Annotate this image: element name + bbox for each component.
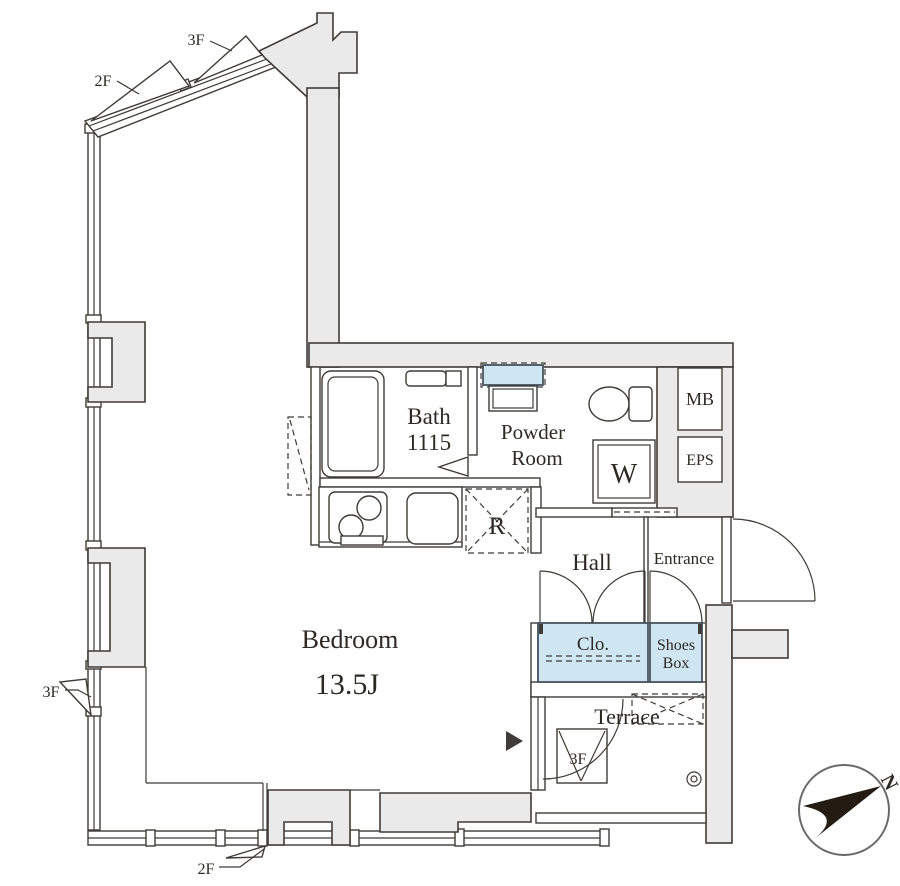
window-mullion (216, 830, 225, 846)
marker-2f-top: 2F (95, 73, 112, 90)
closet-door-arc (593, 571, 645, 623)
marker-3f-left: 3F (43, 684, 60, 701)
window-floor-markers: 2F 3F 3F 2F (43, 32, 264, 878)
hall-label: Hall (572, 550, 612, 575)
closet-door-arc (540, 571, 592, 623)
stove-burner (357, 496, 381, 520)
refrigerator-space: R (466, 489, 528, 553)
closet-hinge-tick (539, 624, 543, 634)
terrace-label: Terrace (594, 704, 660, 729)
kitchen: R (319, 487, 528, 553)
entry-door-arc (733, 519, 815, 601)
toilet-tank (629, 387, 652, 421)
refrigerator-label: R (489, 513, 506, 540)
north-wall-stem (307, 88, 339, 367)
powder-room-label-2: Room (511, 446, 562, 470)
south-wall-block (380, 793, 531, 832)
bath-label: Bath (407, 404, 451, 429)
east-wall (706, 605, 732, 843)
stove-panel (341, 536, 383, 545)
diagonal-window-wall (85, 36, 276, 137)
eps-label: EPS (686, 452, 714, 469)
top-pillar (259, 13, 357, 97)
left-window-wall (85, 124, 101, 830)
marker-3f-top: 3F (188, 32, 205, 49)
shoes-box-door-arc (650, 571, 702, 623)
window-mullion (146, 830, 155, 846)
bath-south-wall (320, 478, 540, 487)
floor-plan: MB EPS R W (0, 0, 900, 886)
drain (687, 772, 701, 786)
toilet-bowl (589, 387, 629, 421)
storage: Clo. Shoes Box (538, 623, 702, 682)
bath-shelf (406, 371, 446, 386)
bath-size-label: 1115 (407, 430, 451, 455)
shoes-box-label-2: Box (663, 655, 690, 672)
window-mullion (258, 830, 267, 846)
bedroom-label: Bedroom (302, 625, 399, 654)
washbasin (489, 386, 537, 411)
marker-2f-bottom: 2F (198, 861, 215, 878)
window-mullion (350, 830, 359, 846)
window-mullion (600, 829, 609, 846)
bathtub (322, 371, 384, 477)
compass: N (799, 765, 900, 855)
entrance-label: Entrance (654, 549, 714, 568)
casement-window-marker-3f-left (60, 679, 91, 715)
washbasin-counter (483, 365, 543, 385)
bath-shelf-end (446, 371, 461, 386)
kitchen-sink (407, 493, 458, 544)
marker-3f-top-leader (210, 41, 232, 51)
utility-shafts: MB EPS (678, 368, 722, 482)
hall-west-wall (531, 487, 541, 553)
shoes-box-label-1: Shoes (657, 637, 695, 654)
entry-direction-arrow (506, 731, 523, 751)
shoes-box-hinge-tick (698, 624, 702, 634)
washing-machine-label: W (611, 459, 638, 490)
entry-door-leaf (722, 517, 731, 603)
terrace-parapet (536, 813, 706, 823)
bedroom-area-label: 13.5J (315, 668, 380, 701)
meter-box-label: MB (686, 389, 714, 409)
powder-room-label-1: Powder (501, 420, 565, 444)
bath-east-wall (468, 367, 477, 455)
closet-label: Clo. (577, 634, 609, 655)
evacuation-hatch-label: 3F (570, 751, 587, 768)
powder-south-wall (536, 508, 612, 517)
east-wall-stub (732, 630, 788, 658)
bath-folding-door-marker (439, 457, 468, 476)
terrace-north-wall (531, 682, 706, 697)
